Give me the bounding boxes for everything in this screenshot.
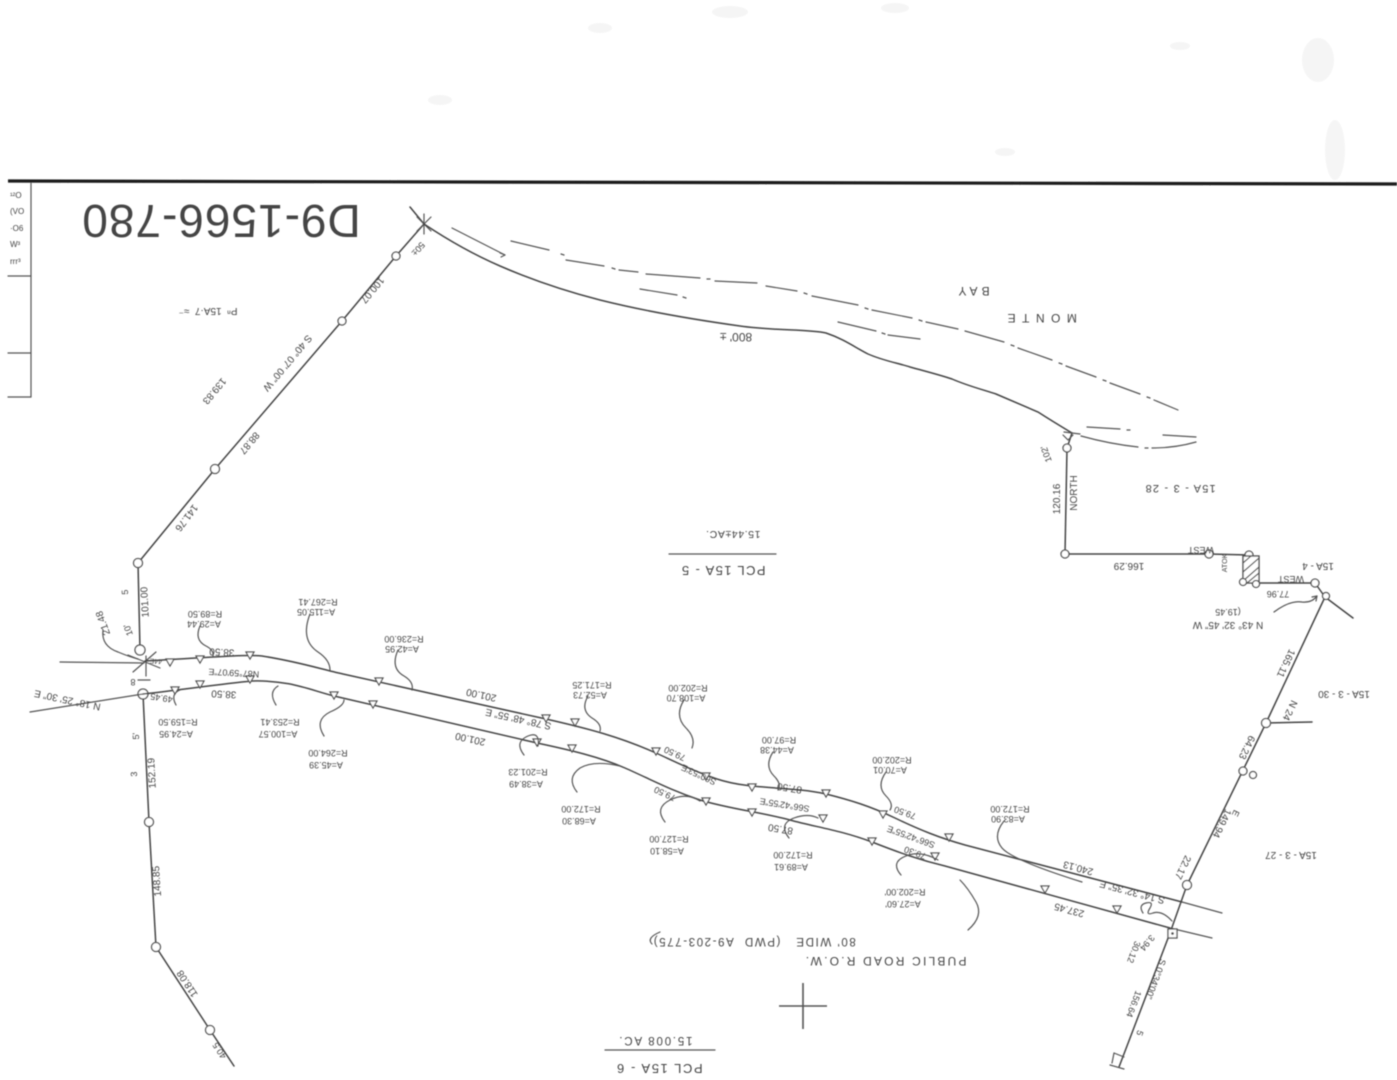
svg-text:rrr³: rrr³ [10,257,21,266]
svg-text:R=264.00: R=264.00 [308,748,347,758]
svg-text:A=115.05: A=115.05 [297,607,335,617]
svg-text:5: 5 [120,589,130,595]
svg-text:15A - 3 - 28: 15A - 3 - 28 [1144,482,1215,494]
svg-text:D9-1566-780: D9-1566-780 [81,195,361,247]
svg-text:5': 5' [131,732,141,740]
svg-text:A=68.30: A=68.30 [562,816,596,826]
svg-text:PUBLIC ROAD R.O.W.: PUBLIC ROAD R.O.W. [804,954,967,968]
svg-text:W³: W³ [10,240,21,249]
svg-text:R=172.00: R=172.00 [561,804,600,814]
svg-text:PCL 15A - 6: PCL 15A - 6 [615,1061,702,1076]
svg-text:A=29.44: A=29.44 [187,619,221,629]
svg-text:A=100.57: A=100.57 [259,729,298,739]
svg-text:R=159.50: R=159.50 [158,717,197,727]
svg-text:15.44±AC.: 15.44±AC. [706,528,761,540]
svg-text:R=172.00: R=172.00 [773,850,812,860]
svg-text:166.29: 166.29 [1113,560,1144,571]
svg-text:A=89.61: A=89.61 [774,862,808,872]
svg-text:A=70.01: A=70.01 [873,765,907,775]
svg-text:(19.45: (19.45 [1215,607,1241,617]
svg-text:A=52.73: A=52.73 [573,690,607,700]
svg-text:R=202.00': R=202.00' [884,887,925,897]
svg-text:R=202.00: R=202.00 [872,755,911,765]
svg-text:A=38.49: A=38.49 [509,779,543,789]
svg-text:R=201.23: R=201.23 [508,767,547,777]
svg-text:MONTE: MONTE [1001,311,1077,325]
svg-text:N 43° 32' 45” W: N 43° 32' 45” W [1192,619,1263,630]
svg-text:148.85: 148.85 [151,865,164,897]
svg-text:A=24.95: A=24.95 [159,729,193,739]
svg-text:15A - 4: 15A - 4 [1302,560,1334,571]
svg-text:38.50: 38.50 [211,687,237,699]
svg-text:R=89.50: R=89.50 [188,609,222,619]
svg-text:BAY: BAY [954,284,989,298]
svg-text:R=202.00: R=202.00 [668,683,707,693]
svg-text:A=108.70: A=108.70 [667,693,706,703]
svg-text:A=45.39: A=45.39 [309,760,343,770]
svg-text:77.96: 77.96 [1267,589,1290,599]
svg-text:R=267.41: R=267.41 [298,597,337,607]
svg-text:WEST: WEST [1277,574,1304,584]
svg-text:3: 3 [129,771,139,777]
svg-text:152.19: 152.19 [146,757,159,789]
svg-text:800' ±: 800' ± [719,330,752,344]
svg-text:(VO: (VO [10,207,24,216]
svg-text:A=27.60': A=27.60' [885,899,921,909]
svg-text:ATOK: ATOK [1222,553,1229,572]
svg-text:Pⁿ 15A·7 ≈⁻: Pⁿ 15A·7 ≈⁻ [179,305,238,316]
svg-text:101.00: 101.00 [139,586,152,618]
svg-text:A=42.95: A=42.95 [385,644,419,654]
svg-text:PCL 15A - 5: PCL 15A - 5 [680,563,765,578]
svg-text:15A - 3 - 30: 15A - 3 - 30 [1318,688,1370,699]
svg-text:A=58.10: A=58.10 [650,846,684,856]
svg-text:8: 8 [130,677,135,687]
svg-text:120.16: 120.16 [1052,483,1063,514]
svg-text:·O6: ·O6 [10,224,24,233]
svg-text:R=172.00: R=172.00 [990,804,1029,814]
svg-text:NORTH: NORTH [1069,475,1080,510]
svg-text:WEST: WEST [1187,545,1214,555]
svg-text:A=83.90: A=83.90 [991,814,1025,824]
svg-text:R=253.41: R=253.41 [260,717,299,727]
svg-text:R=127.00: R=127.00 [649,834,688,844]
svg-text:R=97.00: R=97.00 [762,735,796,745]
svg-text:¹²O: ¹²O [10,191,22,200]
svg-text:80' WIDE (PWD A9-203-775): 80' WIDE (PWD A9-203-775) [652,935,856,947]
svg-text:A=44.38: A=44.38 [760,745,794,755]
svg-text:15A - 3 - 27: 15A - 3 - 27 [1265,849,1317,860]
svg-text:R=171.25: R=171.25 [572,680,611,690]
svg-text:R=236.00: R=236.00 [384,634,423,644]
svg-text:15.008 AC.: 15.008 AC. [618,1034,693,1046]
